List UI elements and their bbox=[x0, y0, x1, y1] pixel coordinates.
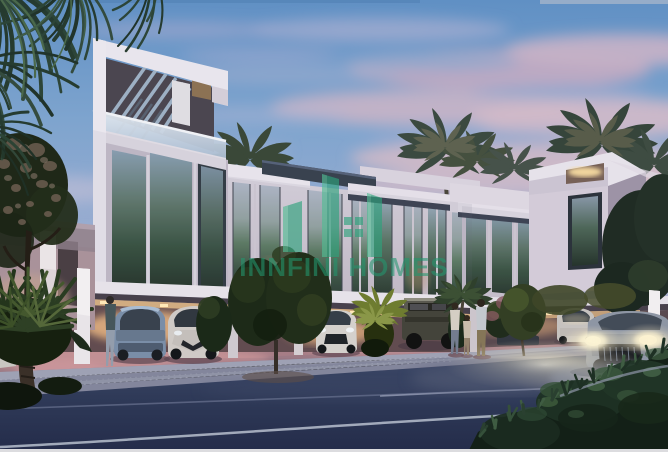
svg-text:INNFINI HOMES: INNFINI HOMES bbox=[239, 252, 448, 282]
